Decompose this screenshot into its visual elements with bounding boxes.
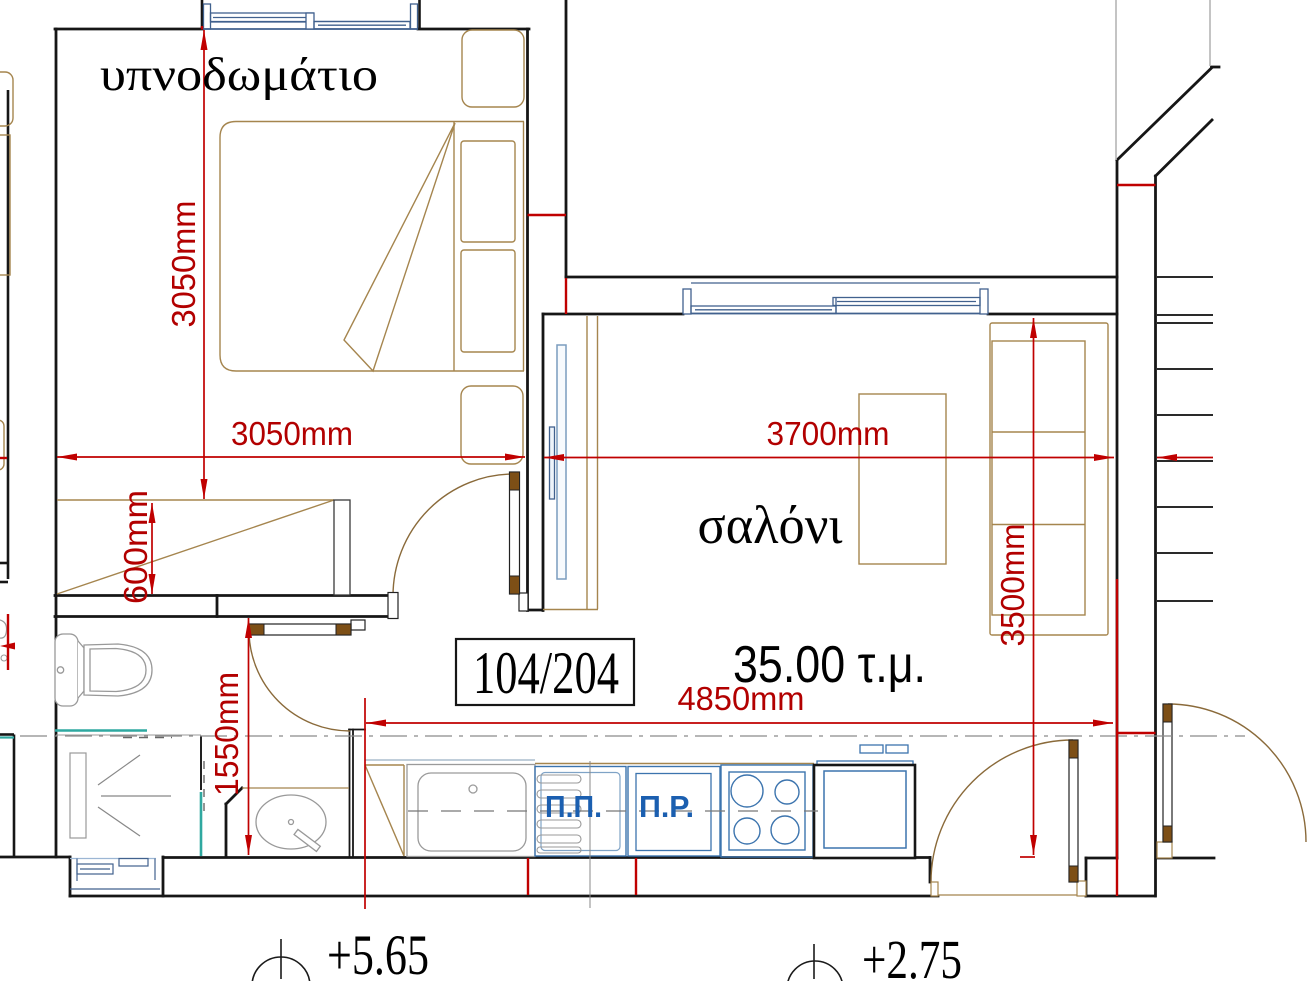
- svg-text:σαλόνι: σαλόνι: [698, 495, 843, 555]
- svg-text:+5.65: +5.65: [327, 924, 429, 981]
- svg-text:35.00 τ.μ.: 35.00 τ.μ.: [733, 636, 926, 694]
- svg-text:600mm: 600mm: [117, 490, 154, 604]
- svg-text:3500mm: 3500mm: [994, 524, 1031, 647]
- svg-text:+2.75: +2.75: [862, 929, 962, 981]
- svg-text:104/204: 104/204: [473, 640, 619, 706]
- svg-text:3700mm: 3700mm: [767, 415, 890, 452]
- svg-text:1550mm: 1550mm: [208, 672, 245, 796]
- svg-text:υπνοδωμάτιο: υπνοδωμάτιο: [100, 49, 378, 101]
- svg-text:3050mm: 3050mm: [165, 201, 202, 328]
- svg-text:Π.Π.: Π.Π.: [545, 789, 602, 824]
- svg-text:Π.Ρ.: Π.Ρ.: [639, 789, 694, 824]
- svg-text:3050mm: 3050mm: [231, 415, 353, 452]
